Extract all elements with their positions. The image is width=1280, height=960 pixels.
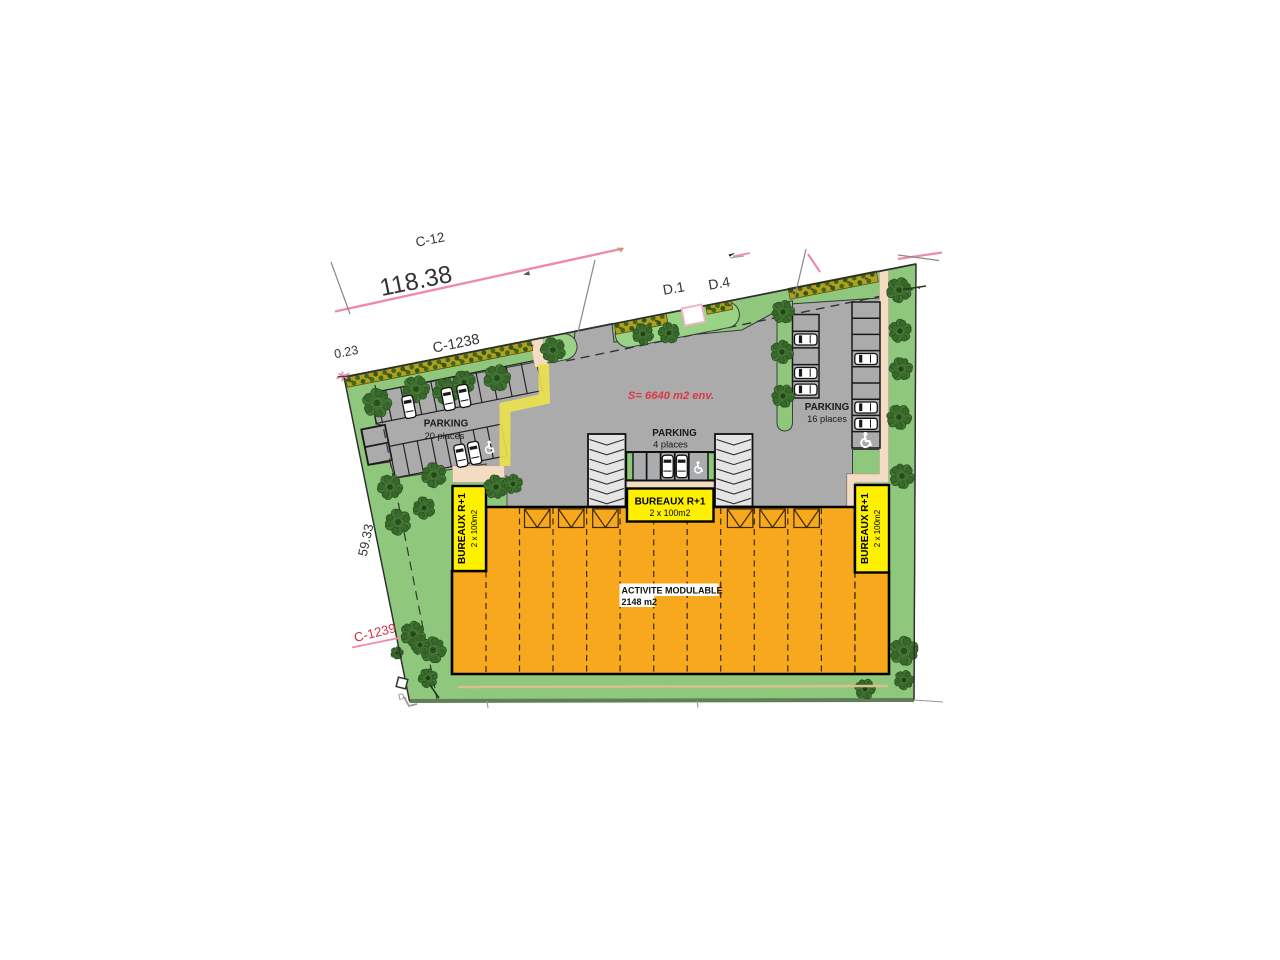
svg-text:D.4: D.4	[707, 273, 731, 293]
svg-text:20 places: 20 places	[425, 431, 465, 441]
svg-text:C-12: C-12	[414, 229, 446, 250]
svg-text:0.23: 0.23	[333, 343, 360, 362]
svg-text:2 x 100m2: 2 x 100m2	[470, 509, 479, 547]
svg-text:16 places: 16 places	[807, 414, 847, 424]
svg-text:59.33: 59.33	[355, 523, 376, 558]
svg-text:C-1239: C-1239	[352, 620, 397, 645]
svg-text:118.38: 118.38	[377, 261, 454, 302]
svg-text:BUREAUX R+1: BUREAUX R+1	[860, 493, 871, 564]
svg-text:ACTIVITE MODULABLE: ACTIVITE MODULABLE	[622, 586, 723, 596]
svg-text:2 x 100m2: 2 x 100m2	[873, 509, 882, 547]
svg-text:PARKING: PARKING	[805, 402, 850, 413]
svg-text:4 places: 4 places	[653, 440, 688, 450]
svg-text:D.1: D.1	[662, 278, 686, 298]
svg-text:BUREAUX R+1: BUREAUX R+1	[457, 493, 468, 564]
svg-text:2 x 100m2: 2 x 100m2	[649, 508, 690, 518]
svg-text:S= 6640 m2 env.: S= 6640 m2 env.	[628, 390, 714, 402]
svg-text:PARKING: PARKING	[652, 428, 697, 439]
svg-text:D.: D.	[397, 690, 408, 702]
svg-text:BUREAUX R+1: BUREAUX R+1	[635, 497, 706, 508]
svg-text:PARKING: PARKING	[424, 419, 469, 430]
svg-text:2148 m2: 2148 m2	[622, 597, 658, 607]
